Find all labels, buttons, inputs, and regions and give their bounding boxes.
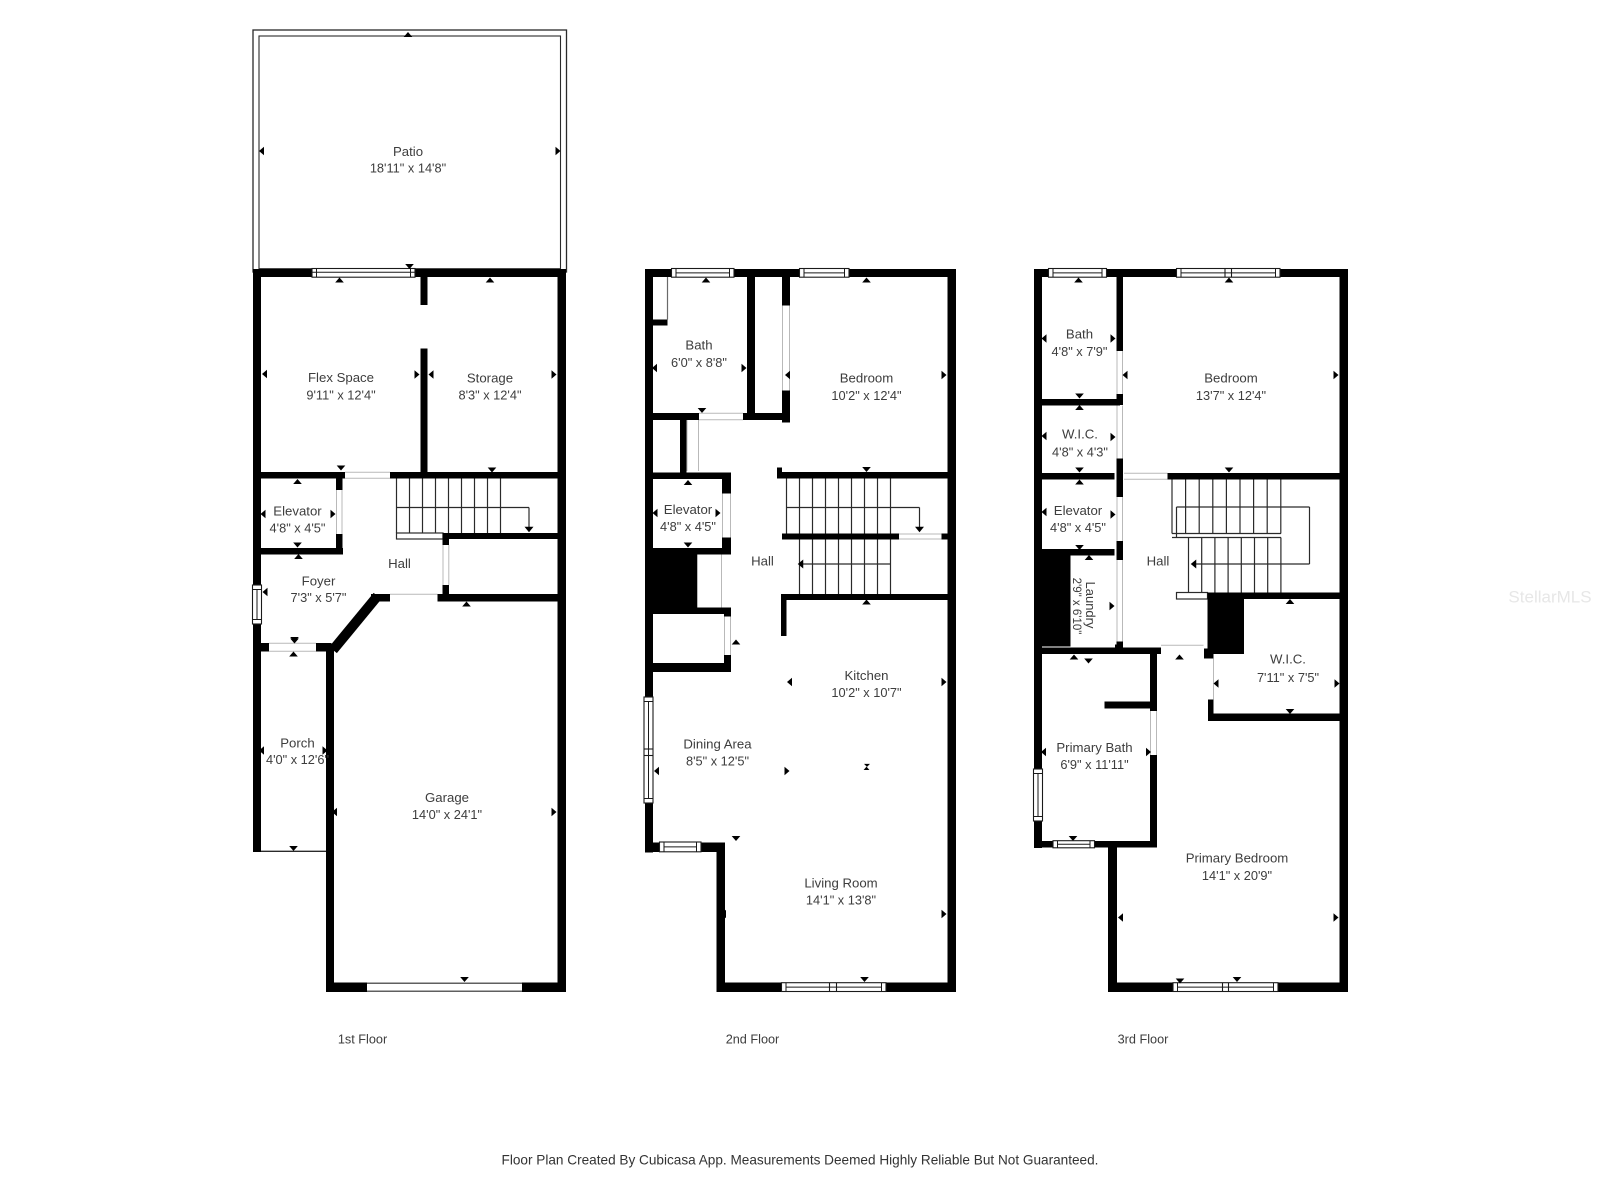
svg-text:7'3" x 5'7": 7'3" x 5'7" xyxy=(291,590,347,605)
svg-text:9'11" x 12'4": 9'11" x 12'4" xyxy=(306,387,375,402)
svg-text:14'0" x 24'1": 14'0" x 24'1" xyxy=(412,807,482,822)
svg-text:Porch: Porch xyxy=(280,735,314,750)
svg-text:Bath: Bath xyxy=(685,337,712,352)
svg-text:14'1" x 20'9": 14'1" x 20'9" xyxy=(1202,868,1272,883)
svg-text:W.I.C.: W.I.C. xyxy=(1270,651,1306,666)
svg-text:Hall: Hall xyxy=(388,556,411,571)
svg-text:4'8" x 7'9": 4'8" x 7'9" xyxy=(1052,344,1108,359)
svg-text:StellarMLS: StellarMLS xyxy=(1508,587,1591,606)
svg-text:4'0" x 12'6": 4'0" x 12'6" xyxy=(266,752,329,767)
svg-text:Kitchen: Kitchen xyxy=(845,668,889,683)
svg-text:Primary Bath: Primary Bath xyxy=(1056,740,1132,755)
svg-text:Elevator: Elevator xyxy=(1054,503,1103,518)
svg-text:4'8" x 4'5": 4'8" x 4'5" xyxy=(270,520,326,535)
svg-text:Bedroom: Bedroom xyxy=(840,370,894,385)
svg-text:Primary Bedroom: Primary Bedroom xyxy=(1186,850,1289,865)
svg-text:2nd Floor: 2nd Floor xyxy=(726,1032,780,1046)
svg-text:Dining Area: Dining Area xyxy=(683,736,752,751)
svg-text:4'8" x 4'5": 4'8" x 4'5" xyxy=(1050,520,1106,535)
svg-text:Floor Plan Created By Cubicasa: Floor Plan Created By Cubicasa App. Meas… xyxy=(502,1153,1099,1168)
svg-text:6'9" x 11'11": 6'9" x 11'11" xyxy=(1060,757,1128,772)
svg-text:Hall: Hall xyxy=(1147,553,1170,568)
svg-text:2'9" x 6'10": 2'9" x 6'10" xyxy=(1070,578,1082,635)
svg-text:Elevator: Elevator xyxy=(664,502,713,517)
svg-text:W.I.C.: W.I.C. xyxy=(1062,426,1098,441)
svg-text:Hall: Hall xyxy=(751,553,774,568)
svg-text:14'1" x 13'8": 14'1" x 13'8" xyxy=(806,892,876,907)
svg-text:Laundry: Laundry xyxy=(1083,582,1098,629)
svg-text:7'11" x 7'5": 7'11" x 7'5" xyxy=(1257,670,1319,685)
svg-text:10'2" x 12'4": 10'2" x 12'4" xyxy=(831,388,901,403)
svg-text:4'8" x 4'3": 4'8" x 4'3" xyxy=(1052,444,1108,459)
svg-text:1st Floor: 1st Floor xyxy=(338,1032,388,1046)
svg-text:6'0" x 8'8": 6'0" x 8'8" xyxy=(671,355,727,370)
svg-text:Living Room: Living Room xyxy=(804,875,877,890)
svg-text:Garage: Garage xyxy=(425,790,469,805)
svg-text:Foyer: Foyer xyxy=(302,573,336,588)
svg-text:Bath: Bath xyxy=(1066,326,1093,341)
svg-text:18'11" x 14'8": 18'11" x 14'8" xyxy=(370,160,446,175)
svg-text:8'3" x 12'4": 8'3" x 12'4" xyxy=(458,387,521,402)
svg-text:4'8" x 4'5": 4'8" x 4'5" xyxy=(660,519,716,534)
svg-text:Patio: Patio xyxy=(393,144,423,159)
svg-text:Storage: Storage xyxy=(467,370,513,385)
svg-text:8'5" x 12'5": 8'5" x 12'5" xyxy=(686,753,749,768)
svg-text:13'7" x 12'4": 13'7" x 12'4" xyxy=(1196,388,1266,403)
svg-text:Elevator: Elevator xyxy=(273,503,322,518)
svg-text:Bedroom: Bedroom xyxy=(1204,370,1258,385)
svg-text:Flex Space: Flex Space xyxy=(308,370,374,385)
svg-text:10'2" x 10'7": 10'2" x 10'7" xyxy=(831,685,901,700)
svg-text:3rd Floor: 3rd Floor xyxy=(1118,1032,1170,1046)
